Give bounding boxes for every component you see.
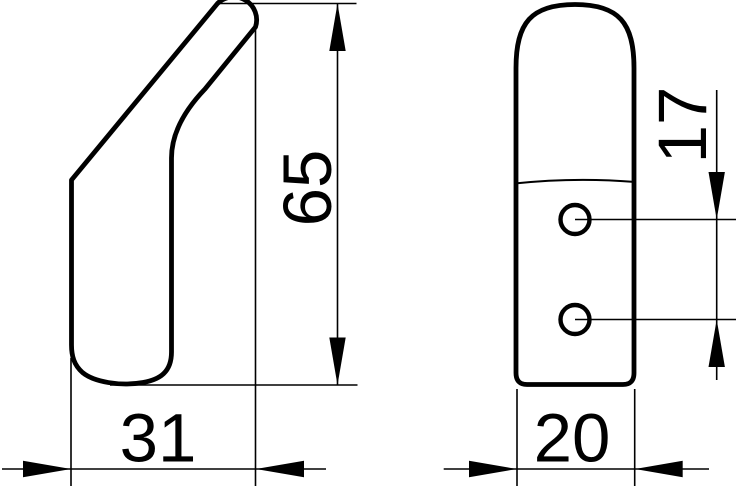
hook-outline bbox=[72, 0, 257, 384]
drawing-canvas: 65 31 17 bbox=[0, 0, 736, 486]
dimension-label-65: 65 bbox=[269, 150, 346, 227]
arrowhead-up-hole bbox=[709, 320, 725, 368]
arrowhead-left bbox=[256, 461, 304, 477]
technical-drawing: 65 31 17 bbox=[0, 0, 736, 486]
arrowhead-up bbox=[329, 4, 345, 52]
side-view: 65 31 bbox=[2, 0, 358, 486]
arrowhead-left-front bbox=[635, 461, 683, 477]
dimension-label-20: 20 bbox=[534, 400, 611, 477]
arrowhead-right bbox=[23, 461, 71, 477]
arrowhead-down-hole bbox=[709, 172, 725, 220]
dimension-label-31: 31 bbox=[120, 400, 197, 477]
dimension-label-17: 17 bbox=[644, 87, 721, 164]
arrowhead-right-front bbox=[469, 461, 517, 477]
arrowhead-down bbox=[329, 338, 345, 386]
front-view: 17 20 bbox=[444, 5, 736, 486]
